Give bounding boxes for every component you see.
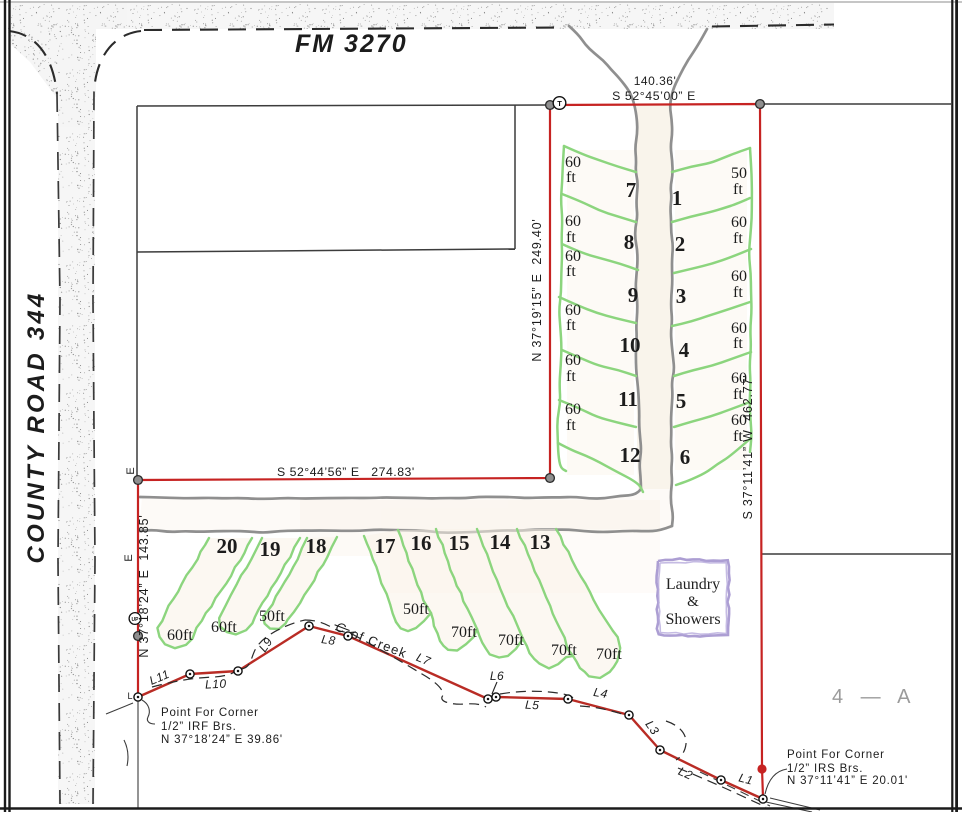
svg-text:50ft: 50ft — [403, 601, 429, 618]
svg-text:7: 7 — [626, 178, 637, 202]
svg-text:N 37°18’24” E 143.85': N 37°18’24” E 143.85' — [137, 514, 151, 657]
svg-text:ft: ft — [733, 230, 743, 247]
svg-text:N 37°11’41” E 20.01': N 37°11’41” E 20.01' — [787, 775, 908, 787]
svg-text:18: 18 — [306, 534, 327, 558]
svg-text:T: T — [557, 99, 562, 108]
svg-text:ft: ft — [733, 181, 743, 198]
svg-text:ft: ft — [566, 417, 576, 434]
svg-text:50: 50 — [731, 165, 747, 182]
svg-text:Point For Corner: Point For Corner — [161, 707, 259, 719]
svg-text:60: 60 — [565, 352, 581, 369]
svg-text:60: 60 — [731, 214, 747, 231]
svg-text:S 37°11’41” W 462.77': S 37°11’41” W 462.77' — [741, 375, 755, 520]
svg-text:9: 9 — [628, 283, 639, 307]
svg-text:13: 13 — [530, 530, 551, 554]
svg-text:1/2” IRS Brs.: 1/2” IRS Brs. — [787, 763, 863, 775]
svg-text:70ft: 70ft — [451, 624, 477, 641]
svg-text:L10: L10 — [205, 676, 227, 691]
svg-text:11: 11 — [618, 387, 638, 411]
svg-text:ft: ft — [566, 169, 576, 186]
svg-text:4: 4 — [679, 338, 690, 362]
svg-text:ft: ft — [566, 317, 576, 334]
svg-text:Showers: Showers — [665, 611, 720, 628]
svg-text:FM 3270: FM 3270 — [295, 30, 408, 58]
svg-text:8: 8 — [624, 230, 635, 254]
svg-text:60: 60 — [731, 412, 747, 429]
svg-text:L6: L6 — [490, 669, 504, 683]
svg-text:70ft: 70ft — [498, 632, 524, 649]
svg-text:10: 10 — [620, 333, 641, 357]
svg-text:50ft: 50ft — [259, 608, 285, 625]
svg-text:4 — A: 4 — A — [832, 686, 916, 708]
svg-text:&: & — [687, 594, 699, 610]
svg-text:16: 16 — [411, 531, 432, 555]
svg-text:ft: ft — [566, 229, 576, 246]
svg-text:ft: ft — [733, 386, 743, 403]
svg-text:15: 15 — [449, 531, 470, 555]
svg-text:1/2” IRF Brs.: 1/2” IRF Brs. — [161, 721, 237, 733]
svg-text:14: 14 — [490, 530, 512, 554]
svg-text:COUNTY ROAD 344: COUNTY ROAD 344 — [23, 291, 50, 564]
svg-text:E: E — [125, 467, 137, 474]
svg-text:Laundry: Laundry — [666, 576, 720, 593]
svg-text:60: 60 — [731, 268, 747, 285]
svg-text:70ft: 70ft — [596, 646, 622, 663]
svg-text:70ft: 70ft — [551, 642, 577, 659]
svg-text:1: 1 — [672, 186, 683, 210]
svg-text:S 52°44’56” E 274.83': S 52°44’56” E 274.83' — [277, 465, 415, 479]
svg-text:Point For Corner: Point For Corner — [787, 749, 885, 761]
svg-text:12: 12 — [620, 443, 641, 467]
svg-text:L4: L4 — [592, 685, 609, 701]
svg-text:60: 60 — [565, 213, 581, 230]
svg-text:5: 5 — [676, 389, 687, 413]
svg-text:E: E — [123, 554, 135, 561]
svg-text:60: 60 — [565, 401, 581, 418]
svg-text:L8: L8 — [320, 632, 336, 648]
svg-text:N 37°18’24” E 39.86': N 37°18’24” E 39.86' — [161, 734, 283, 746]
svg-text:S 52°45’00” E: S 52°45’00” E — [612, 89, 696, 103]
svg-text:ft: ft — [566, 263, 576, 280]
svg-text:ft: ft — [733, 428, 743, 445]
svg-text:3: 3 — [676, 284, 687, 308]
svg-text:60ft: 60ft — [211, 619, 237, 636]
svg-text:6: 6 — [680, 445, 691, 469]
svg-text:60: 60 — [731, 370, 747, 387]
svg-text:140.36': 140.36' — [634, 74, 677, 88]
svg-text:ft: ft — [566, 368, 576, 385]
svg-text:19: 19 — [260, 537, 281, 561]
svg-text:ft: ft — [733, 335, 743, 352]
svg-text:L5: L5 — [525, 698, 540, 713]
svg-text:17: 17 — [375, 534, 396, 558]
svg-text:60ft: 60ft — [167, 627, 193, 644]
svg-text:2: 2 — [675, 232, 686, 256]
svg-text:L: L — [127, 691, 132, 701]
svg-text:20: 20 — [217, 534, 238, 558]
svg-text:N 37°19’15” E 249.40': N 37°19’15” E 249.40' — [530, 218, 544, 361]
svg-text:ft: ft — [733, 284, 743, 301]
